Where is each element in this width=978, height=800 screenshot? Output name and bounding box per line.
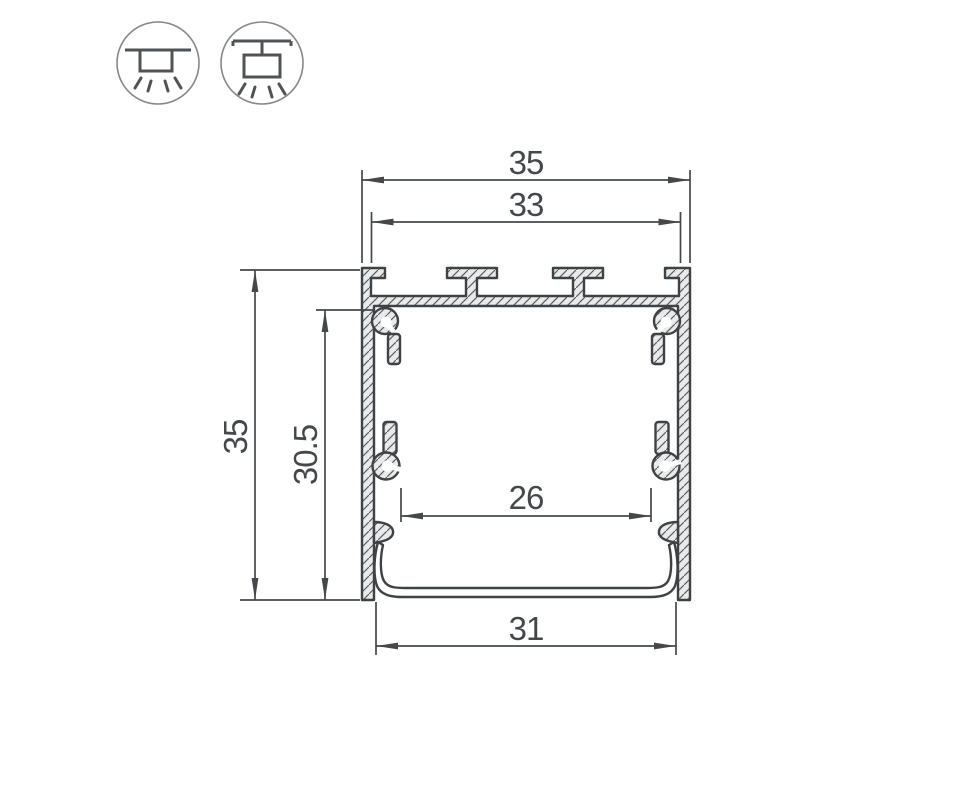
dimension-label: 31: [509, 610, 544, 647]
dimension-label: 30.5: [287, 425, 324, 485]
profile-cross-section-drawing: 35 33 35 30.5 26 31: [0, 0, 978, 800]
dimension-label: 35: [509, 144, 544, 181]
dimension-label: 26: [509, 479, 544, 516]
profile-drawing-canvas: 35 33 35 30.5 26 31: [0, 0, 978, 800]
dimension-label: 33: [509, 186, 544, 223]
dimension-label: 35: [217, 420, 254, 455]
background: [0, 0, 978, 800]
